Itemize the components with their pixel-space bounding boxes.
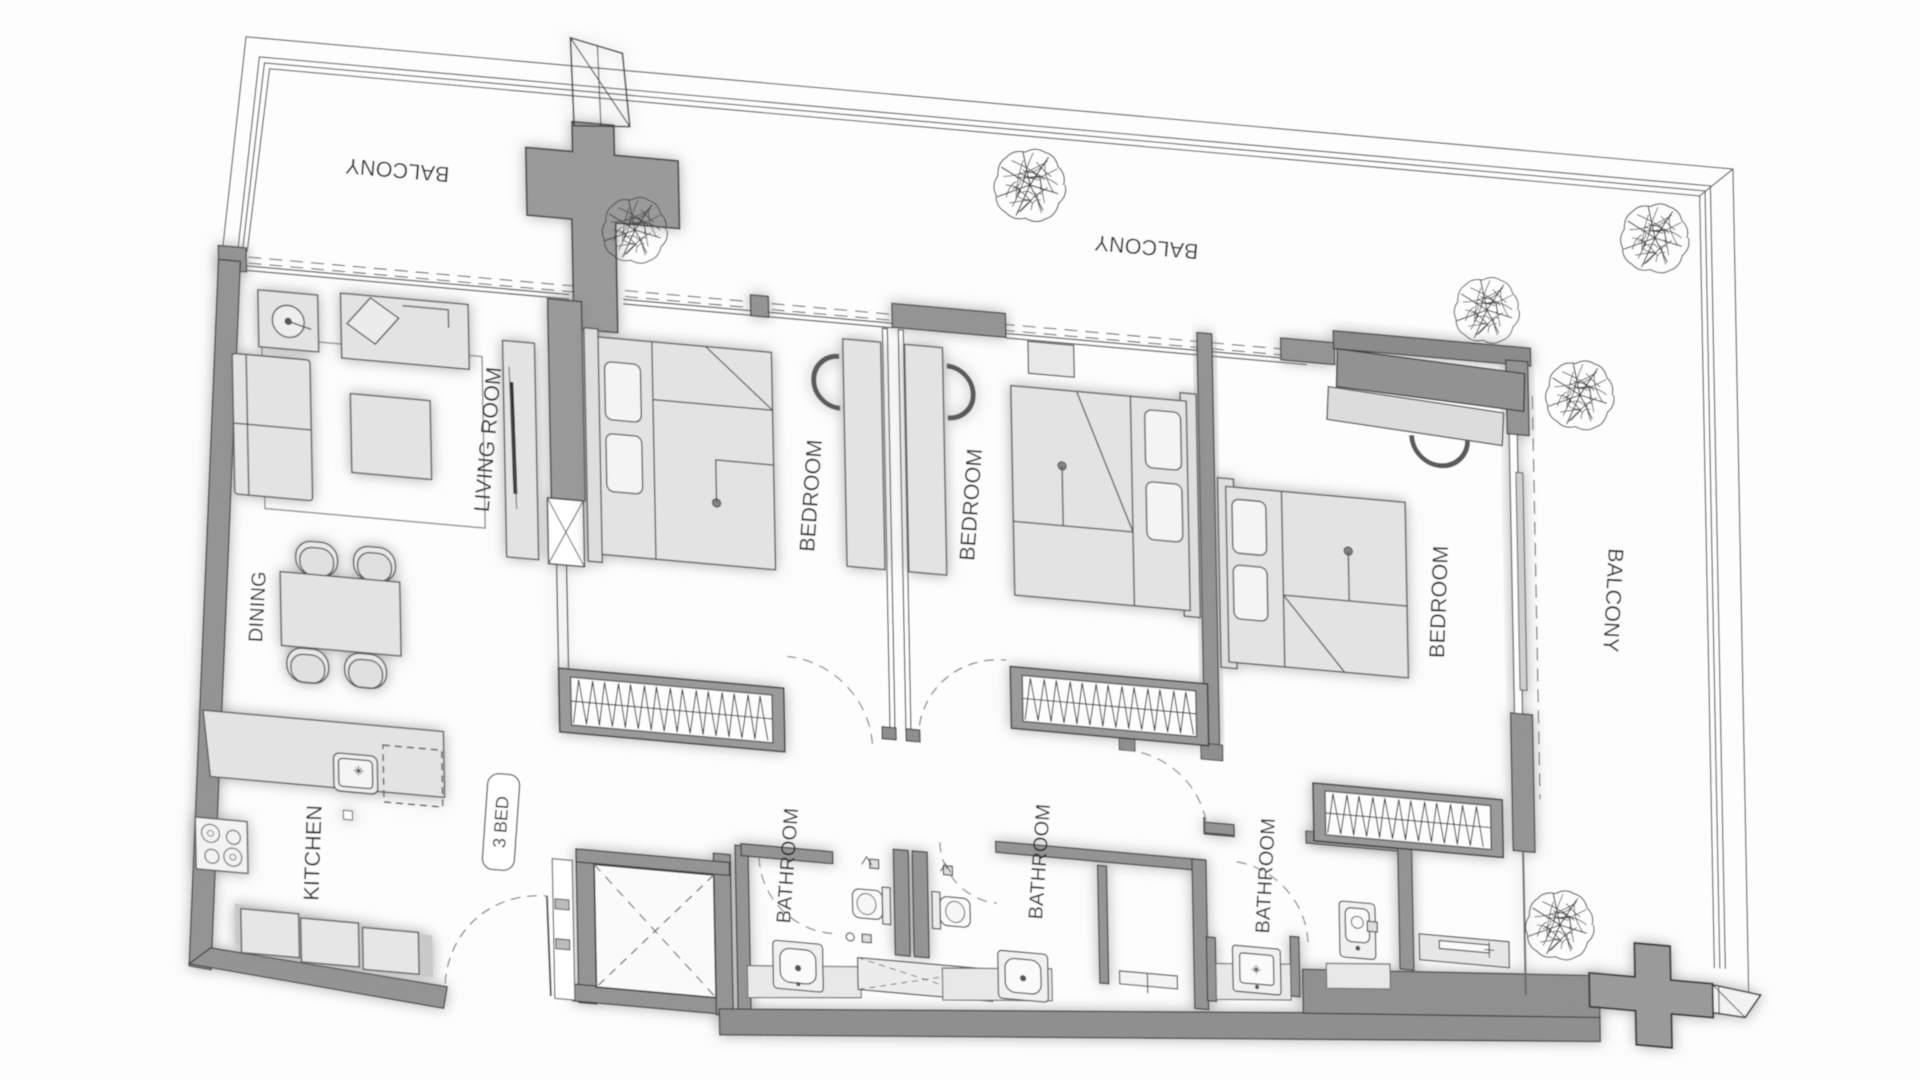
svg-text:KITCHEN: KITCHEN xyxy=(299,804,326,901)
svg-text:3 BED: 3 BED xyxy=(489,795,513,848)
svg-text:DINING: DINING xyxy=(245,571,271,643)
svg-text:BEDROOM: BEDROOM xyxy=(1425,545,1453,658)
